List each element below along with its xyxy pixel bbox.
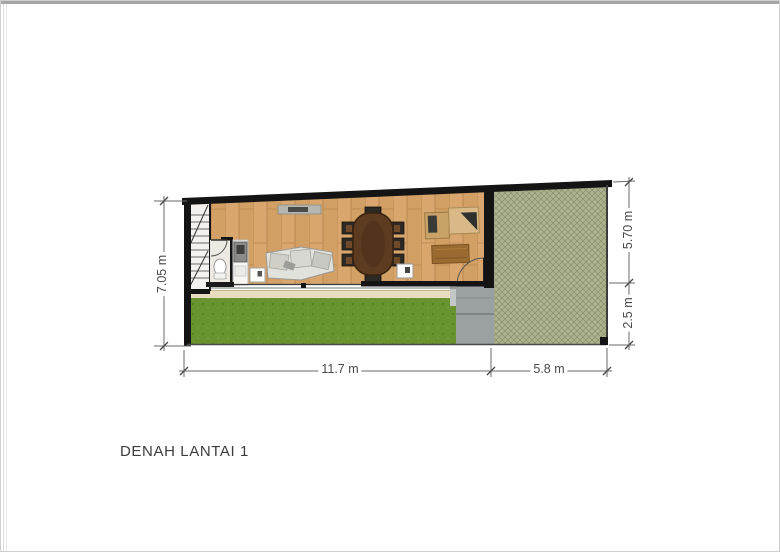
utility-box (397, 264, 413, 278)
floor-plan-drawing (1, 1, 780, 552)
floor-plan-image: 7.05 m 5.70 m 2.5 m 11.7 m 5.8 m DENAH L… (0, 0, 780, 552)
tv-console (278, 205, 321, 214)
lawn (191, 298, 456, 345)
stepping-path-step (450, 284, 456, 306)
rug (432, 244, 470, 263)
wall-left (184, 200, 191, 346)
dim-label-right-lower: 2.5 m (622, 294, 636, 331)
wall-post-corner (600, 337, 608, 345)
plan-title: DENAH LANTAI 1 (120, 443, 249, 460)
kitchen-unit (233, 240, 248, 285)
dim-label-left-height: 7.05 m (156, 252, 170, 296)
dim-label-bottom-main: 11.7 m (318, 363, 361, 377)
paved-yard (494, 186, 607, 344)
wall-right-interior (484, 188, 494, 288)
bathroom (210, 237, 233, 287)
terrace-strip (191, 290, 456, 298)
dim-label-right-upper: 5.70 m (622, 208, 636, 252)
dim-label-bottom-side: 5.8 m (530, 363, 567, 377)
toilet (214, 259, 226, 279)
side-table (250, 268, 265, 282)
